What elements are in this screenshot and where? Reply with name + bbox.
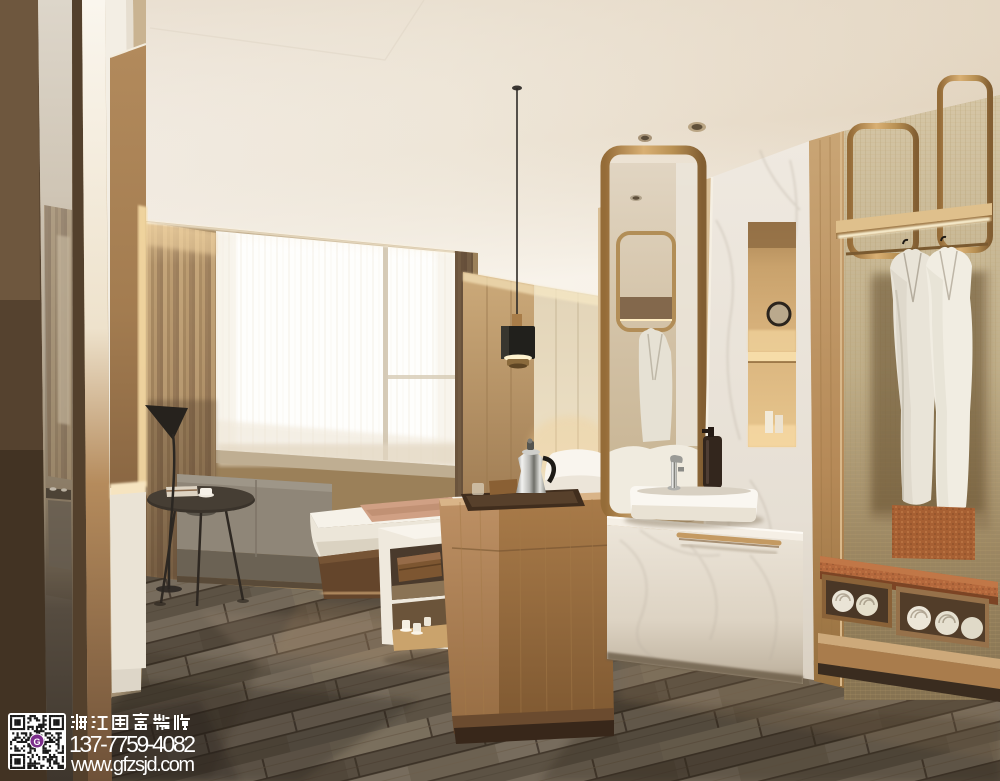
svg-text:G: G	[33, 737, 40, 747]
svg-text:www.gfzsjd.com: www.gfzsjd.com	[70, 754, 195, 776]
